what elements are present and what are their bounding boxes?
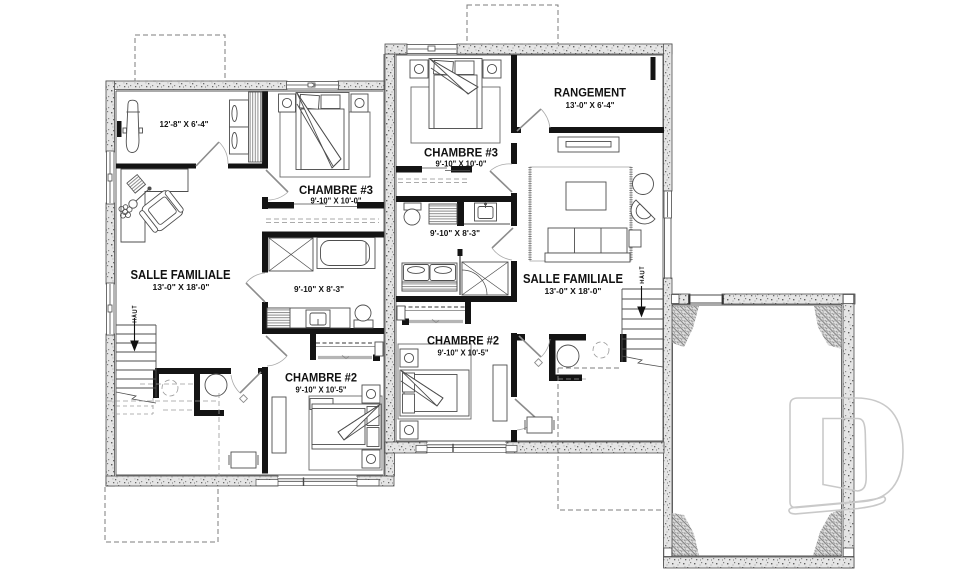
svg-text:13'-0" X 6'-4": 13'-0" X 6'-4" bbox=[566, 101, 615, 110]
svg-text:9'-10" X 10'-0": 9'-10" X 10'-0" bbox=[311, 197, 362, 206]
svg-text:RANGEMENT: RANGEMENT bbox=[554, 86, 626, 100]
svg-text:9'-10" X 10'-5": 9'-10" X 10'-5" bbox=[296, 386, 347, 395]
svg-text:9'-10" X 10'-5": 9'-10" X 10'-5" bbox=[438, 349, 489, 358]
svg-text:SALLE FAMILIALE: SALLE FAMILIALE bbox=[131, 268, 231, 282]
svg-text:9'-10" X 8'-3": 9'-10" X 8'-3" bbox=[294, 284, 344, 294]
svg-text:13'-0" X 18'-0": 13'-0" X 18'-0" bbox=[153, 282, 210, 292]
svg-text:9'-10" X 8'-3": 9'-10" X 8'-3" bbox=[430, 228, 480, 238]
svg-text:9'-10" X 10'-0": 9'-10" X 10'-0" bbox=[436, 160, 487, 169]
svg-text:CHAMBRE #2: CHAMBRE #2 bbox=[427, 334, 499, 348]
svg-text:13'-0" X 18'-0": 13'-0" X 18'-0" bbox=[545, 286, 602, 296]
svg-text:12'-8" X 6'-4": 12'-8" X 6'-4" bbox=[160, 120, 209, 129]
svg-text:CHAMBRE #2: CHAMBRE #2 bbox=[285, 371, 357, 385]
svg-text:SALLE FAMILIALE: SALLE FAMILIALE bbox=[523, 272, 623, 286]
svg-text:CHAMBRE #3: CHAMBRE #3 bbox=[424, 146, 498, 160]
svg-text:CHAMBRE #3: CHAMBRE #3 bbox=[299, 183, 373, 197]
